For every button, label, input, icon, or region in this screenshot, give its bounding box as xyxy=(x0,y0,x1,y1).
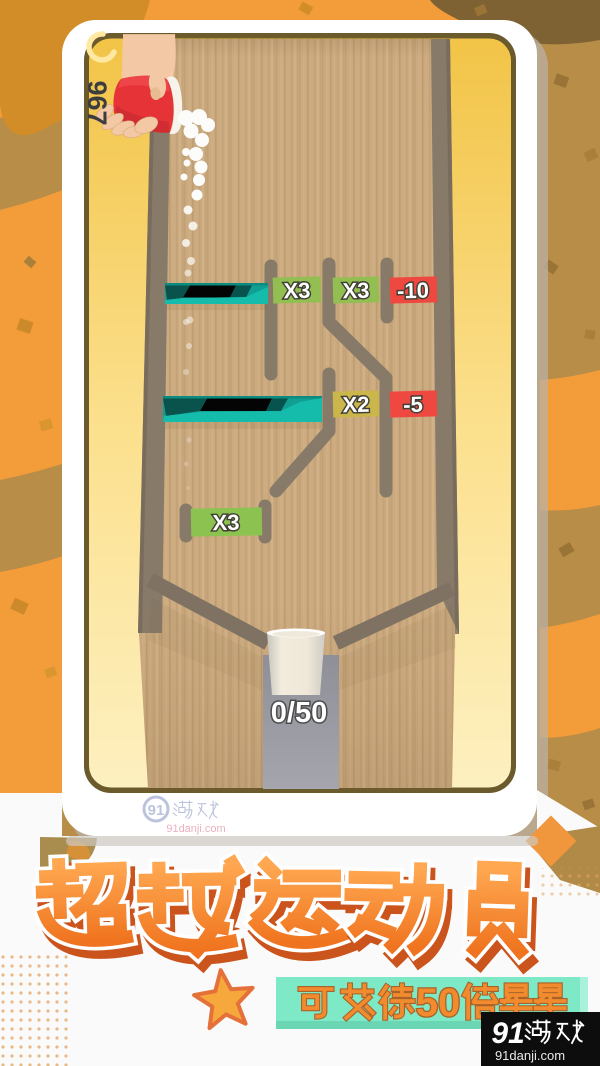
svg-text:967: 967 xyxy=(82,80,112,125)
svg-text:91: 91 xyxy=(148,802,165,819)
svg-text:0/50: 0/50 xyxy=(271,697,327,729)
svg-text:X3: X3 xyxy=(283,278,311,304)
svg-text:91danji.com: 91danji.com xyxy=(495,1048,565,1063)
svg-text:X3: X3 xyxy=(342,278,370,304)
svg-text:X2: X2 xyxy=(342,392,370,418)
svg-text:91: 91 xyxy=(491,1017,524,1050)
svg-text:X3: X3 xyxy=(212,510,239,535)
svg-text:-10: -10 xyxy=(397,278,429,304)
svg-text:91danji.com: 91danji.com xyxy=(166,823,225,835)
svg-text:-5: -5 xyxy=(403,392,423,418)
svg-text:50: 50 xyxy=(416,981,461,1025)
